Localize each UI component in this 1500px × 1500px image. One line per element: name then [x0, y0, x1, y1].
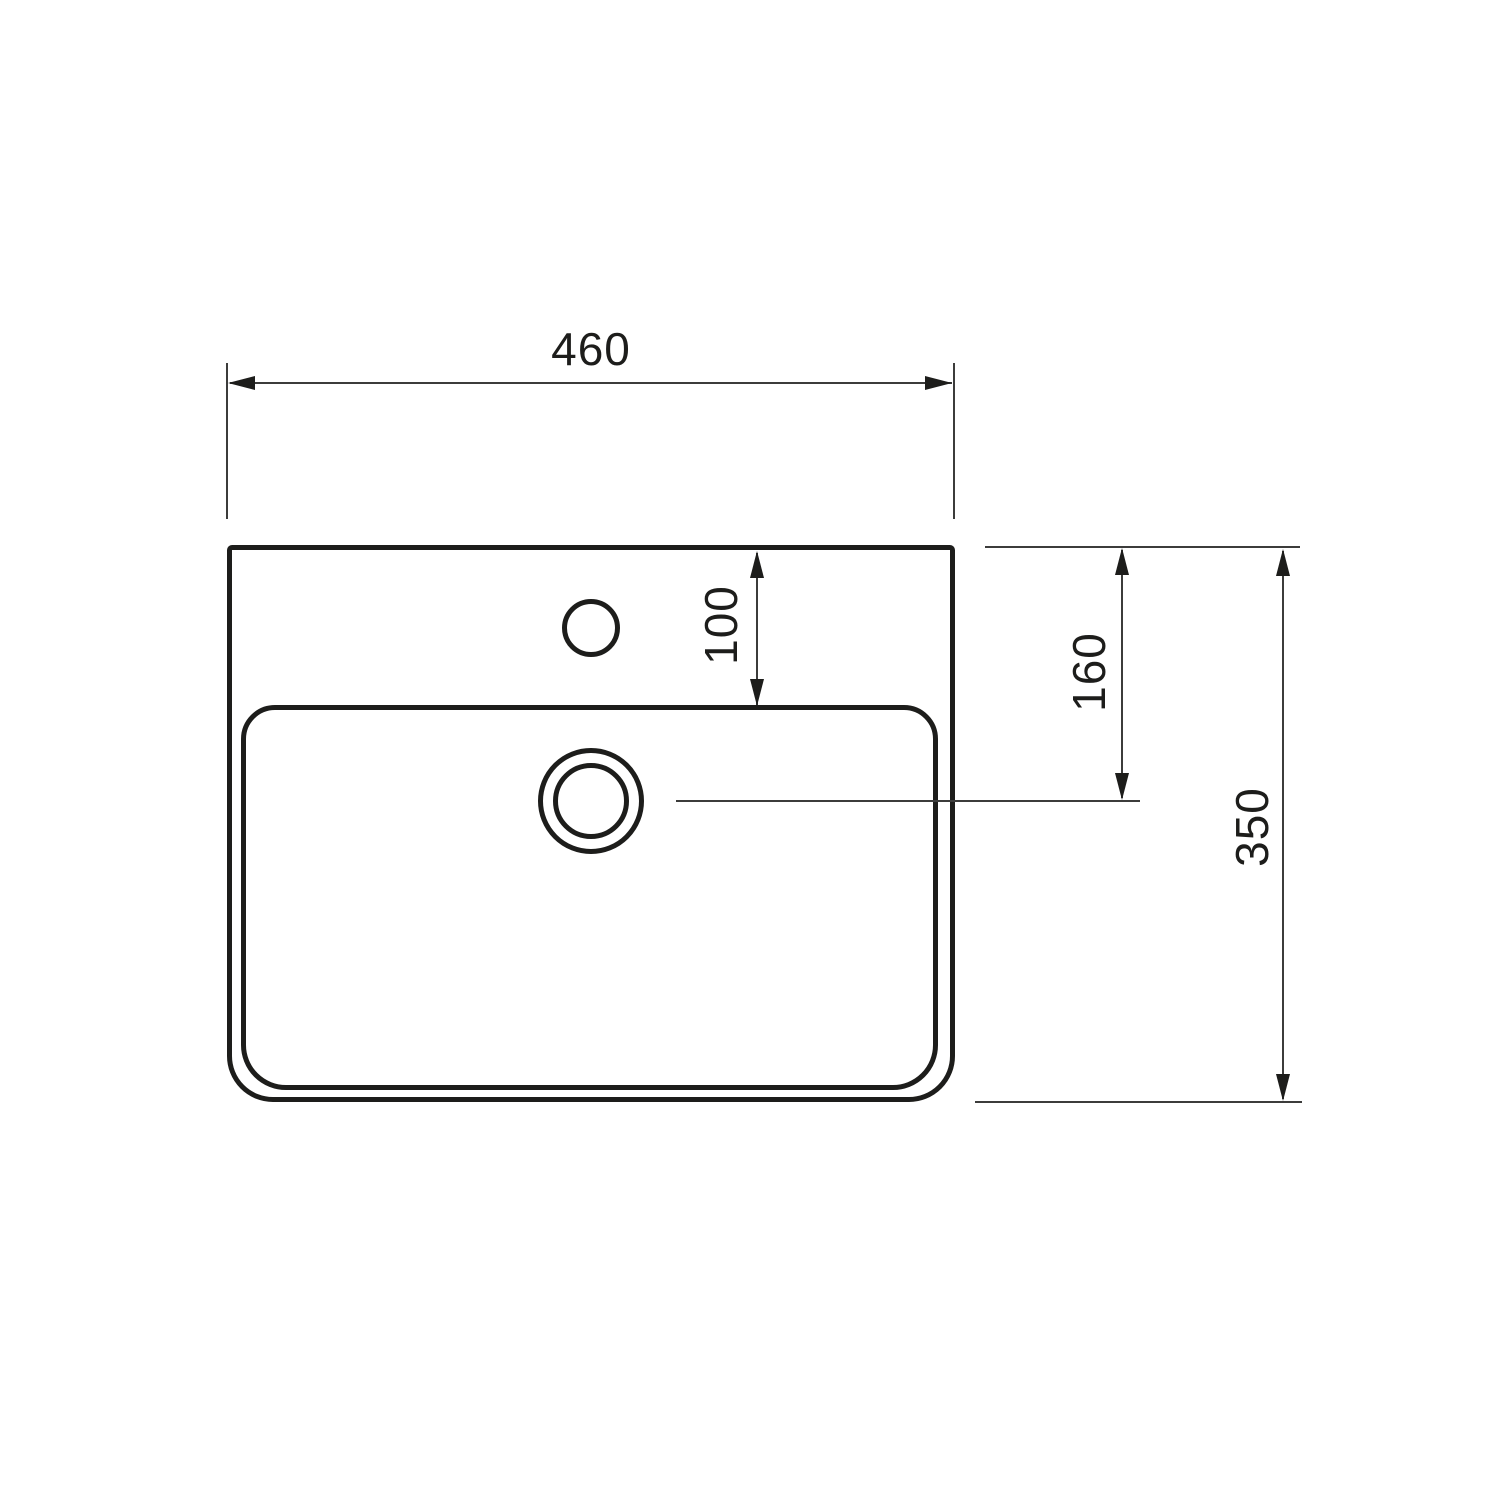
arrowhead-up-icon [750, 551, 764, 578]
dimension-label-drain-offset: 160 [1066, 632, 1112, 712]
drain-hole-inner-ring [553, 763, 629, 839]
dimension-label-width: 460 [551, 326, 631, 372]
dimension-label-faucet-offset: 100 [698, 585, 744, 665]
arrowhead-down-icon [1276, 1074, 1290, 1101]
dimension-label-depth: 350 [1229, 787, 1275, 867]
arrowhead-left-icon [228, 376, 255, 390]
dimension-line [1282, 551, 1284, 1099]
technical-drawing-page: { "drawing": { "subject": "wall-hung was… [0, 0, 1500, 1500]
arrowhead-right-icon [925, 376, 952, 390]
drain-center-leader-line [676, 800, 1140, 802]
dimension-line [230, 382, 952, 384]
extension-line-top-edge [985, 546, 1300, 548]
arrowhead-down-icon [1115, 773, 1129, 800]
arrowhead-up-icon [1115, 548, 1129, 575]
arrowhead-up-icon [1276, 549, 1290, 576]
arrowhead-down-icon [750, 679, 764, 706]
faucet-hole [562, 599, 620, 657]
dimension-line [1121, 550, 1123, 798]
extension-line-bottom-edge [975, 1101, 1302, 1103]
extension-line-right [953, 363, 955, 519]
